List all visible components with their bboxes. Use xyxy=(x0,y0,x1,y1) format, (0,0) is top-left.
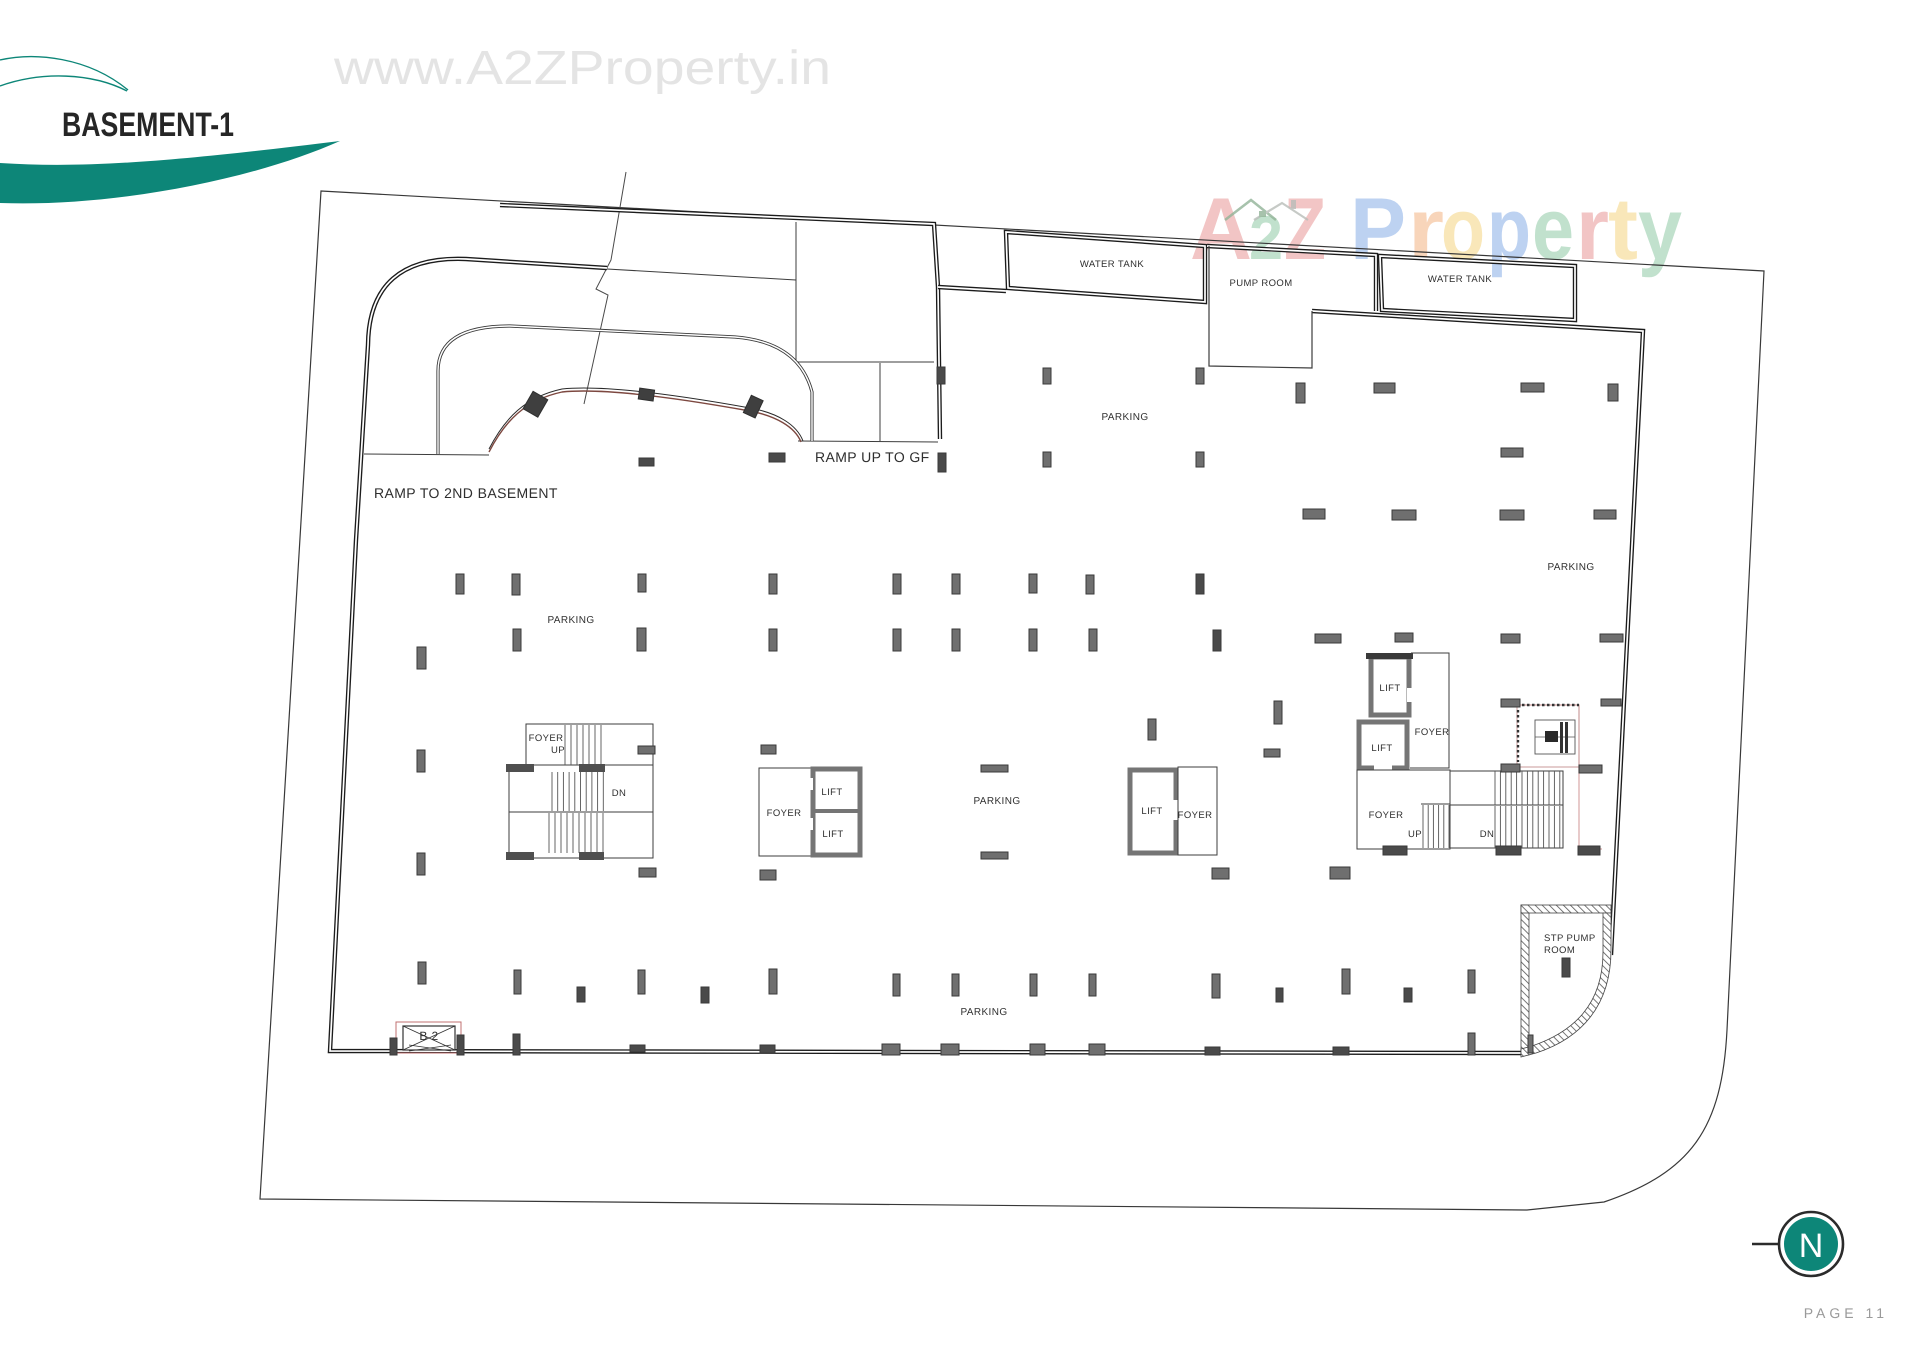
svg-text:FOYER: FOYER xyxy=(767,808,802,819)
svg-text:PARKING: PARKING xyxy=(1547,562,1594,573)
svg-text:WATER TANK: WATER TANK xyxy=(1080,259,1145,270)
svg-text:A: A xyxy=(1190,179,1252,278)
svg-text:RAMP TO 2ND BASEMENT: RAMP TO 2ND BASEMENT xyxy=(374,485,558,501)
svg-text:FOYER: FOYER xyxy=(529,733,564,744)
svg-text:WATER TANK: WATER TANK xyxy=(1428,274,1493,285)
svg-text:UP: UP xyxy=(551,745,565,756)
svg-text:LIFT: LIFT xyxy=(1379,683,1400,694)
svg-text:LIFT: LIFT xyxy=(1141,806,1162,817)
svg-text:RAMP UP TO GF: RAMP UP TO GF xyxy=(815,449,930,465)
svg-text:LIFT: LIFT xyxy=(821,787,842,798)
svg-text:PARKING: PARKING xyxy=(547,615,594,626)
svg-text:r: r xyxy=(1408,179,1444,278)
svg-text:ROOM: ROOM xyxy=(1544,945,1575,956)
svg-text:PARKING: PARKING xyxy=(973,796,1020,807)
svg-text:PAGE 11: PAGE 11 xyxy=(1804,1305,1888,1321)
svg-text:PARKING: PARKING xyxy=(960,1007,1007,1018)
svg-text:www.A2ZProperty.in: www.A2ZProperty.in xyxy=(333,42,831,95)
svg-text:PARKING: PARKING xyxy=(1101,412,1148,423)
svg-text:BASEMENT-1: BASEMENT-1 xyxy=(62,106,234,144)
svg-text:LIFT: LIFT xyxy=(1371,743,1392,754)
svg-text:Z: Z xyxy=(1284,179,1326,278)
svg-text:N: N xyxy=(1799,1227,1824,1265)
svg-text:UP: UP xyxy=(1408,829,1422,840)
svg-text:FOYER: FOYER xyxy=(1415,727,1450,738)
svg-text:FOYER: FOYER xyxy=(1369,810,1404,821)
svg-text:PUMP ROOM: PUMP ROOM xyxy=(1229,278,1292,289)
svg-text:B 2: B 2 xyxy=(419,1029,438,1043)
svg-text:DN: DN xyxy=(612,788,627,799)
svg-text:DN: DN xyxy=(1480,829,1495,840)
svg-text:r: r xyxy=(1576,179,1609,278)
svg-text:FOYER: FOYER xyxy=(1178,810,1213,821)
svg-text:y: y xyxy=(1638,179,1682,278)
svg-text:LIFT: LIFT xyxy=(822,829,843,840)
svg-text:STP PUMP: STP PUMP xyxy=(1544,933,1596,944)
